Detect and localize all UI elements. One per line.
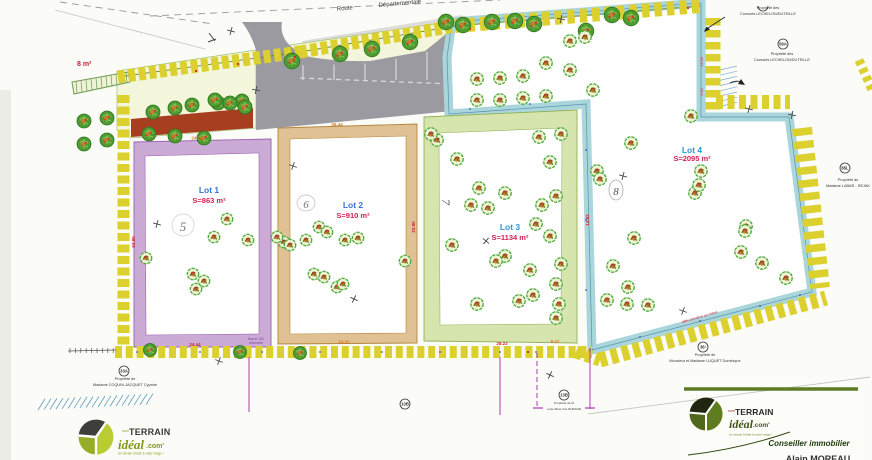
svg-text:8.41: 8.41	[551, 339, 560, 344]
svg-text:8: 8	[613, 186, 619, 198]
svg-text:Un terrain à bâtir à votre ima: Un terrain à bâtir à votre image !	[118, 452, 164, 456]
svg-text:Lot 1: Lot 1	[199, 185, 220, 195]
svg-text:Propriété de: Propriété de	[838, 178, 859, 182]
svg-text:et de Mme Vve DURAND: et de Mme Vve DURAND	[547, 407, 582, 411]
svg-text:S=1134 m²: S=1134 m²	[492, 233, 529, 242]
svg-text:Propriété de: Propriété de	[115, 377, 136, 381]
svg-text:26.44: 26.44	[331, 122, 343, 127]
svg-text:12.50: 12.50	[700, 57, 704, 67]
svg-text:Propriété de M: Propriété de M	[554, 401, 574, 405]
svg-text:Alain MOREAU: Alain MOREAU	[786, 454, 851, 460]
svg-text:Propriété des: Propriété des	[757, 6, 780, 10]
svg-text:5: 5	[180, 219, 187, 234]
svg-text:mon: mon	[728, 409, 735, 413]
svg-text:idéal: idéal	[729, 417, 754, 431]
svg-text:Propriété de: Propriété de	[695, 353, 716, 357]
svg-text:24.76: 24.76	[191, 136, 203, 141]
svg-text:36¹: 36¹	[700, 345, 707, 350]
svg-text:24.32: 24.32	[338, 340, 350, 345]
svg-text:Un terrain à bâtir à votre ima: Un terrain à bâtir à votre image !	[729, 433, 772, 437]
svg-text:Monsieur et Madame LUQUET Domi: Monsieur et Madame LUQUET Dominique	[669, 359, 740, 363]
svg-text:28.22: 28.22	[496, 341, 508, 346]
svg-text:Conseiller immobilier: Conseiller immobilier	[768, 439, 850, 448]
svg-text:23.90: 23.90	[411, 221, 416, 233]
svg-text:8 m²: 8 m²	[77, 61, 92, 68]
svg-text:13B: 13B	[560, 393, 568, 398]
svg-text:Consorts LECHELON/DUTEILLE: Consorts LECHELON/DUTEILLE	[740, 12, 796, 16]
svg-text:mon: mon	[122, 429, 129, 433]
svg-text:Lot 3: Lot 3	[500, 222, 521, 232]
svg-text:53.80: 53.80	[131, 236, 136, 248]
svg-text:10B: 10B	[401, 402, 409, 407]
svg-text:7: 7	[439, 199, 453, 206]
svg-text:TERRAIN: TERRAIN	[129, 427, 170, 437]
svg-text:6: 6	[303, 199, 309, 211]
svg-text:.com': .com'	[146, 443, 164, 450]
svg-text:S=863 m²: S=863 m²	[192, 196, 226, 205]
svg-text:.com': .com'	[753, 422, 770, 429]
svg-text:4.50: 4.50	[700, 88, 704, 95]
svg-text:33A: 33A	[120, 369, 128, 374]
svg-text:Madame COQUIN-JACQUET Cyprine: Madame COQUIN-JACQUET Cyprine	[93, 383, 157, 387]
svg-text:idéal: idéal	[118, 437, 144, 452]
svg-text:TERRAIN: TERRAIN	[735, 407, 773, 417]
svg-text:Madame LABAR - REJAK: Madame LABAR - REJAK	[826, 184, 870, 188]
svg-text:56A: 56A	[779, 42, 787, 47]
svg-text:S=2095 m²: S=2095 m²	[673, 154, 711, 163]
svg-text:Lot 2: Lot 2	[343, 200, 364, 210]
svg-text:85L: 85L	[841, 166, 849, 171]
svg-text:Consorts LECHELON/DUTEILLE: Consorts LECHELON/DUTEILLE	[754, 58, 810, 62]
svg-text:24.44: 24.44	[189, 342, 201, 347]
svg-text:Propriété des: Propriété des	[771, 52, 794, 56]
svg-text:S=910 m²: S=910 m²	[336, 211, 370, 220]
svg-text:retrouvée: retrouvée	[249, 341, 263, 345]
